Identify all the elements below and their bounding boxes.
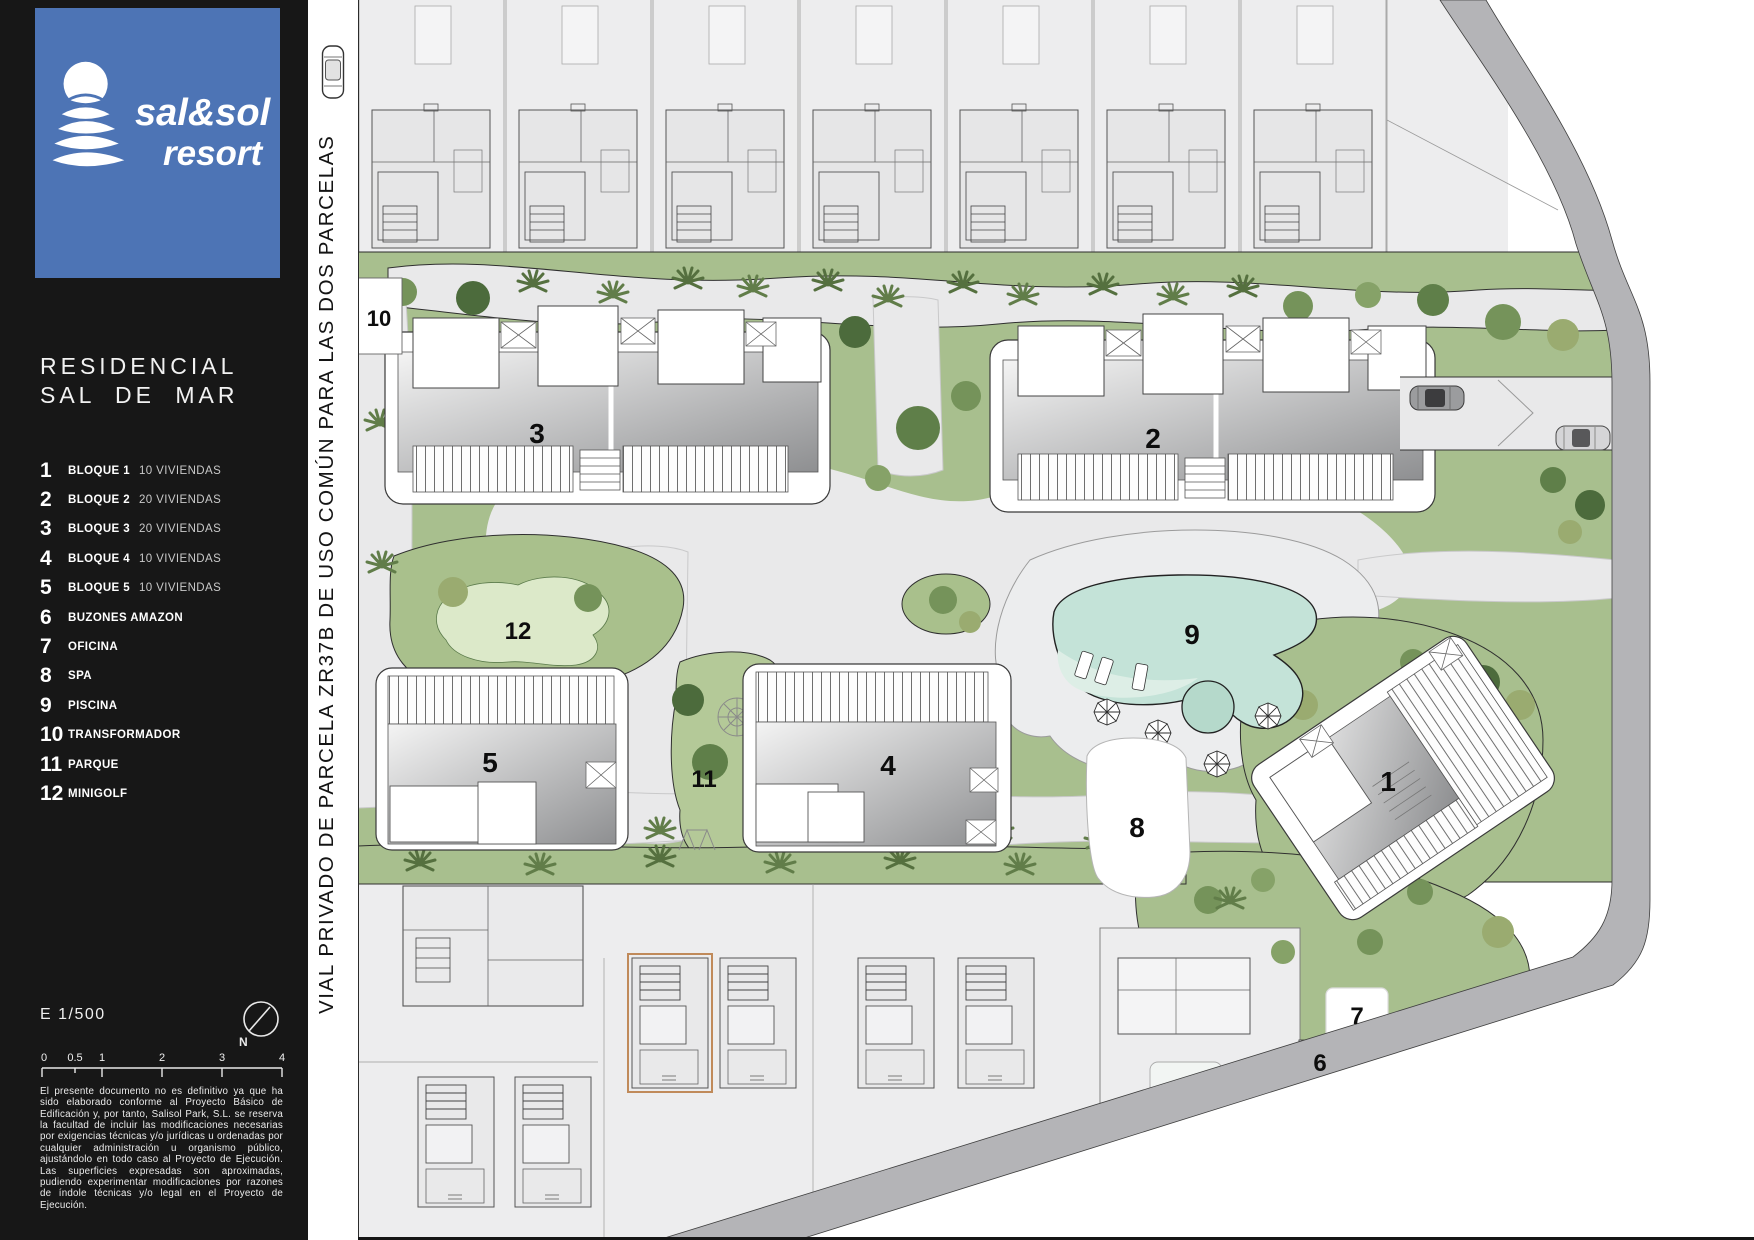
- legend-num: 4: [40, 547, 68, 571]
- plan-label-7: 7: [1350, 1003, 1363, 1030]
- brand-line1: sal&sol: [135, 94, 270, 132]
- legend-item-8: 8SPA: [40, 662, 221, 691]
- villa-house: [858, 958, 934, 1088]
- legend-label: BLOQUE 1: [68, 465, 139, 477]
- plan-label-12: 12: [505, 618, 532, 645]
- legend-label: TRANSFORMADOR: [68, 729, 185, 741]
- car-icon: [1556, 426, 1610, 450]
- legend-num: 1: [40, 459, 68, 483]
- plan-label-2: 2: [1145, 423, 1161, 454]
- legend-item-1: 1BLOQUE 110 VIVIENDAS: [40, 456, 221, 485]
- path-right-arm: [1358, 551, 1616, 602]
- villa-house: [958, 958, 1034, 1088]
- plan-label-6: 6: [1313, 1050, 1326, 1077]
- disclaimer-text: El presente documento no es definitivo y…: [40, 1086, 283, 1211]
- legend-item-9: 9PISCINA: [40, 691, 221, 720]
- scalebar-tick: 4: [279, 1052, 285, 1064]
- legend-label: BLOQUE 4: [68, 553, 139, 565]
- title-line1: RESIDENCIAL: [40, 352, 238, 381]
- plan-label-11: 11: [691, 766, 716, 793]
- legend-label: BLOQUE 5: [68, 582, 139, 594]
- legend-value: 10 VIVIENDAS: [139, 465, 221, 477]
- building-3: [385, 306, 830, 504]
- legend-label: PISCINA: [68, 700, 139, 712]
- legend-value: 10 VIVIENDAS: [139, 553, 221, 565]
- site-plan-drawing: 1 2 3 4 5 6 7 8 9 10 11 12: [358, 0, 1754, 1240]
- plan-label-9: 9: [1184, 619, 1200, 650]
- legend-num: 7: [40, 635, 68, 659]
- legend-label: PARQUE: [68, 759, 139, 771]
- legend-label: BUZONES AMAZON: [68, 612, 187, 624]
- plan-label-4: 4: [880, 750, 896, 781]
- legend-value: 10 VIVIENDAS: [139, 582, 221, 594]
- legend-num: 12: [40, 782, 68, 806]
- scalebar-tick: 0.5: [67, 1052, 82, 1064]
- highlighted-villa-plot: [628, 954, 712, 1092]
- legend-item-4: 4BLOQUE 410 VIVIENDAS: [40, 544, 221, 573]
- legend-value: 20 VIVIENDAS: [139, 494, 221, 506]
- street-label: VIAL PRIVADO DE PARCELA ZR37B DE USO COM…: [315, 178, 351, 1014]
- legend-label: BLOQUE 3: [68, 523, 139, 535]
- building-2: [990, 314, 1435, 512]
- logo: sal&sol resort: [35, 8, 280, 278]
- private-road-strip: VIAL PRIVADO DE PARCELA ZR37B DE USO COM…: [308, 0, 358, 1240]
- legend-num: 9: [40, 694, 68, 718]
- legend-item-5: 5BLOQUE 510 VIVIENDAS: [40, 574, 221, 603]
- parasol-icon: [1204, 751, 1230, 777]
- path-fork: [873, 297, 943, 476]
- north-label: N: [239, 1035, 248, 1049]
- villa-house: [418, 1077, 494, 1207]
- sun-waves-icon: [47, 54, 139, 180]
- villa-house: [720, 958, 796, 1088]
- legend-item-12: 12MINIGOLF: [40, 779, 221, 808]
- building-4: [743, 664, 1011, 852]
- plan-label-3: 3: [529, 418, 545, 449]
- legend-label: OFICINA: [68, 641, 139, 653]
- legend-num: 3: [40, 517, 68, 541]
- neighbor-villas-top: [358, 0, 1558, 258]
- villa-house: [403, 886, 583, 1006]
- legend-num: 5: [40, 576, 68, 600]
- legend-num: 2: [40, 488, 68, 512]
- scalebar-tick: 1: [99, 1052, 105, 1064]
- legend-num: 10: [40, 723, 68, 747]
- legend-label: MINIGOLF: [68, 788, 139, 800]
- legend-item-10: 10TRANSFORMADOR: [40, 721, 221, 750]
- scalebar-tick: 2: [159, 1052, 165, 1064]
- legend-item-6: 6BUZONES AMAZON: [40, 603, 221, 632]
- legend-num: 6: [40, 606, 68, 630]
- legend-item-7: 7OFICINA: [40, 632, 221, 661]
- parasol-icon: [1094, 699, 1120, 725]
- legend-value: 20 VIVIENDAS: [139, 523, 221, 535]
- scalebar-tick: 0: [41, 1052, 47, 1064]
- plan-label-8: 8: [1129, 812, 1145, 843]
- car-icon: [1410, 386, 1464, 410]
- legend-item-3: 3BLOQUE 320 VIVIENDAS: [40, 515, 221, 544]
- building-5: [376, 668, 628, 850]
- legend-label: BLOQUE 2: [68, 494, 139, 506]
- villa-house: [515, 1077, 591, 1207]
- north-arrow-icon: N: [235, 998, 283, 1052]
- legend-item-11: 11PARQUE: [40, 750, 221, 779]
- brand-text: sal&sol resort: [135, 94, 270, 171]
- scale-bar: 0 0.5 1 2 3 4: [40, 1052, 284, 1078]
- brand-line2: resort: [163, 136, 270, 171]
- round-pool: [1182, 681, 1234, 733]
- legend-num: 11: [40, 753, 68, 777]
- sidebar: sal&sol resort RESIDENCIAL SAL DE MAR 1B…: [0, 0, 308, 1240]
- legend: 1BLOQUE 110 VIVIENDAS 2BLOQUE 220 VIVIEN…: [40, 456, 221, 809]
- legend-label: SPA: [68, 670, 139, 682]
- parasol-icon: [1255, 703, 1281, 729]
- plan-label-10: 10: [367, 306, 391, 331]
- legend-item-2: 2BLOQUE 220 VIVIENDAS: [40, 485, 221, 514]
- scalebar-tick: 3: [219, 1052, 225, 1064]
- plan-label-5: 5: [482, 747, 498, 778]
- title-line2: SAL DE MAR: [40, 381, 238, 410]
- scale-label: E 1/500: [40, 1006, 106, 1024]
- car-icon: [321, 44, 345, 100]
- legend-num: 8: [40, 664, 68, 688]
- site-plan-poster: sal&sol resort RESIDENCIAL SAL DE MAR 1B…: [0, 0, 1754, 1240]
- plan-label-1: 1: [1380, 766, 1396, 797]
- page-title: RESIDENCIAL SAL DE MAR: [40, 352, 238, 410]
